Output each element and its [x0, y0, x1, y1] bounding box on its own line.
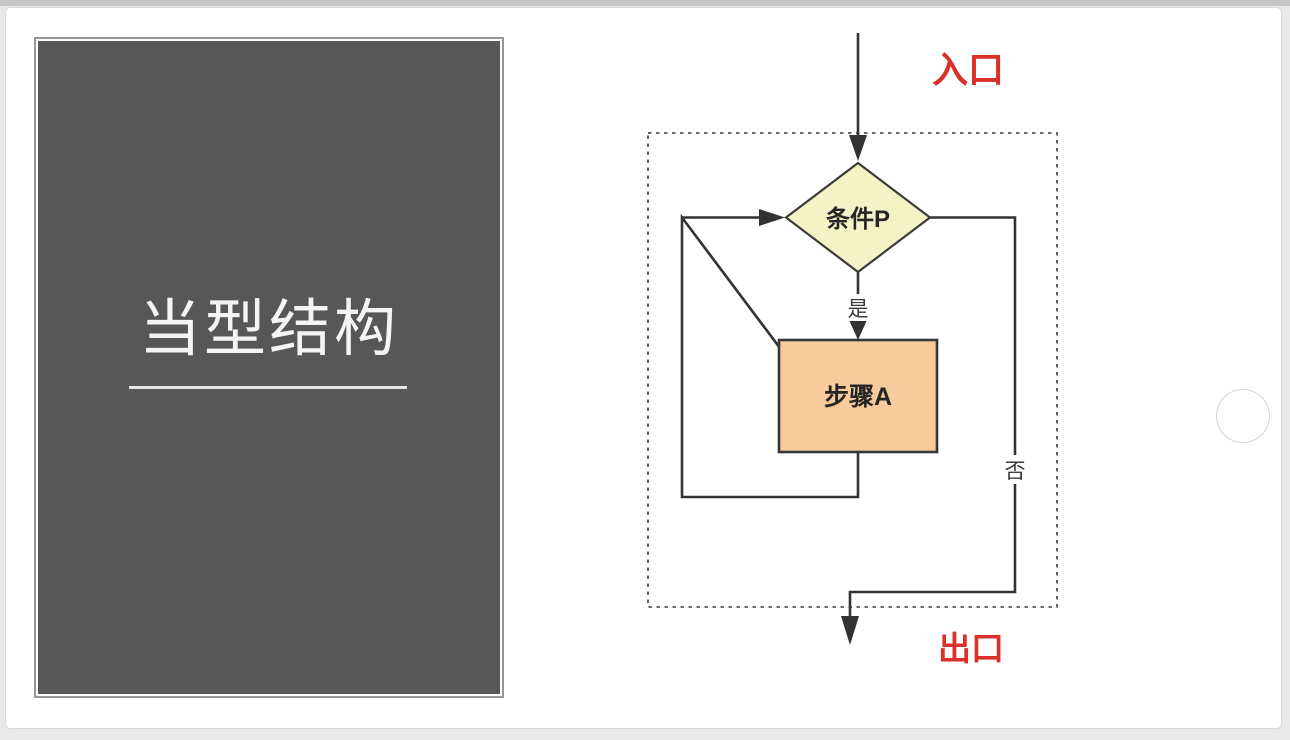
title-panel-frame: 当型结构 [34, 37, 504, 698]
no-label: 否 [1005, 460, 1026, 483]
step-label: 步骤A [824, 383, 892, 411]
yes-branch-arrowhead [849, 320, 867, 340]
while-loop-flowchart: 条件P 步骤A 是 否 入口 出口 [600, 0, 1120, 740]
title-panel: 当型结构 [38, 41, 500, 694]
loop-back-arrowhead [759, 209, 785, 226]
entry-arrowhead [849, 135, 867, 161]
yes-label: 是 [848, 298, 869, 321]
condition-label: 条件P [826, 206, 890, 233]
exit-label: 出口 [938, 630, 1004, 667]
entry-label: 入口 [932, 49, 1004, 90]
title-underline [129, 386, 407, 389]
exit-arrowhead [841, 616, 859, 645]
slide-title: 当型结构 [38, 297, 500, 362]
side-circle-marker [1216, 389, 1270, 443]
